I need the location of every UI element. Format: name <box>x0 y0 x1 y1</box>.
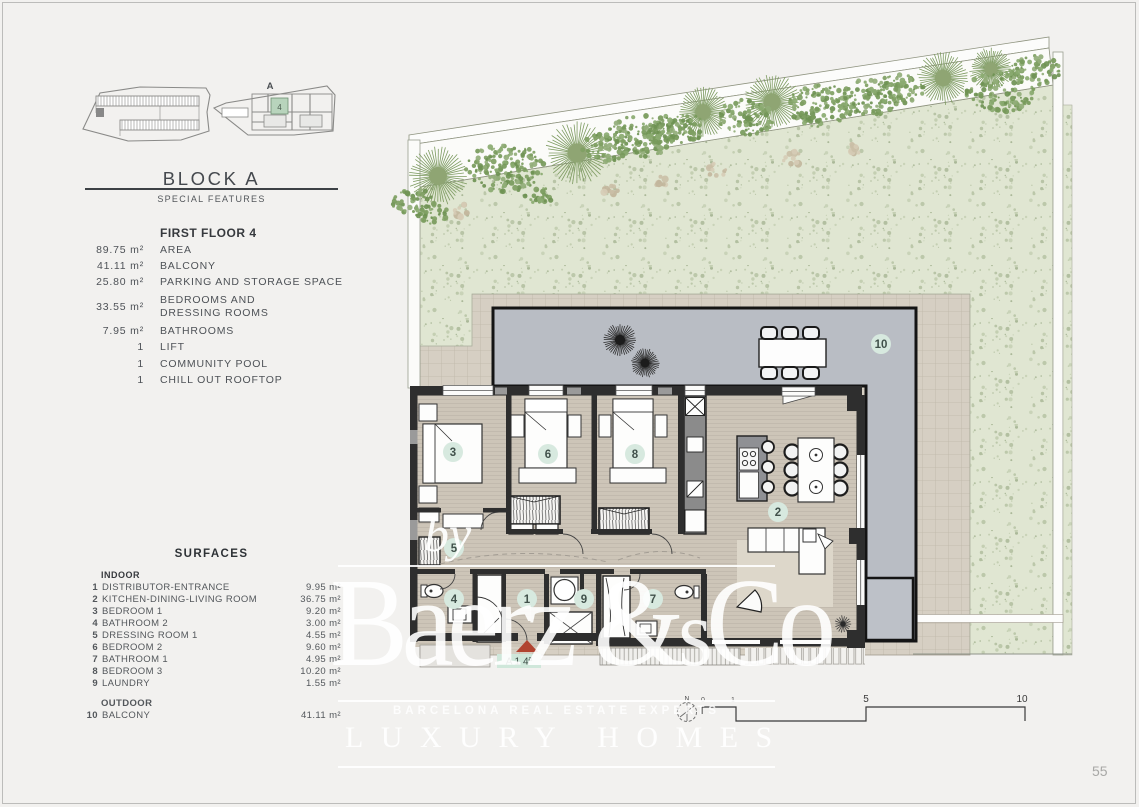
svg-text:2: 2 <box>775 507 781 519</box>
svg-text:10: 10 <box>1016 694 1028 705</box>
svg-text:8: 8 <box>632 449 639 461</box>
svg-text:A: A <box>267 81 274 92</box>
svg-text:3: 3 <box>450 447 456 459</box>
svg-text:6: 6 <box>545 449 551 461</box>
svg-text:4: 4 <box>277 103 282 112</box>
svg-text:5: 5 <box>863 694 869 705</box>
svg-text:10: 10 <box>875 339 888 351</box>
